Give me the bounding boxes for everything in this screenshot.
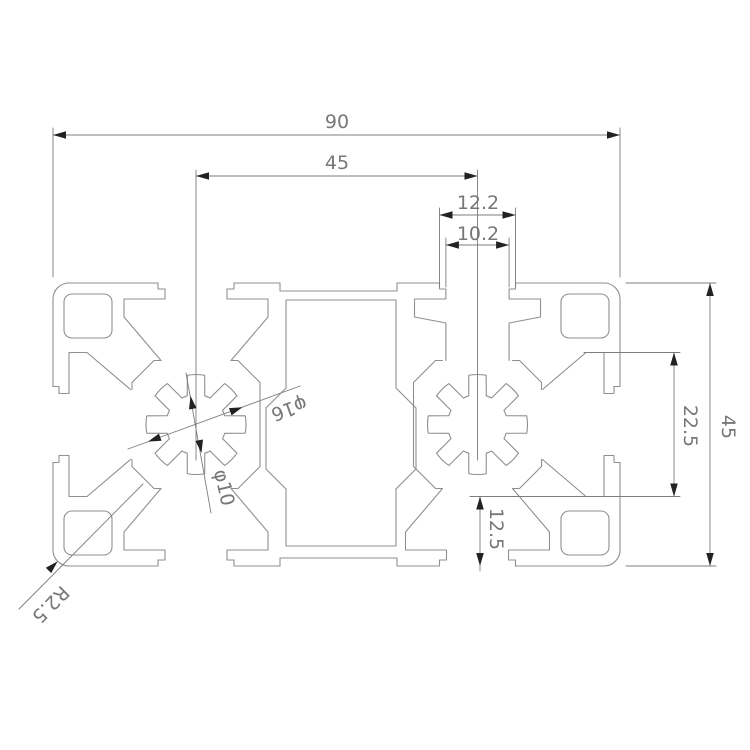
dim-channel-inner-label: 10.2 <box>457 223 499 245</box>
arrowhead <box>229 404 244 416</box>
arrowhead <box>147 434 162 446</box>
profile-outline <box>53 283 620 566</box>
dim-corner-radius-label: R2.5 <box>27 581 73 627</box>
arrowhead <box>196 172 209 180</box>
arrowhead <box>440 211 453 219</box>
dim-bore-inner-label: φ10 <box>209 467 239 508</box>
arrowhead <box>476 497 484 510</box>
dim-bottom-offset: 12.5 <box>476 497 507 572</box>
dim-bore-inner: φ10 <box>186 373 239 513</box>
dim-side-slot-span-label: 22.5 <box>679 405 701 447</box>
profile-section <box>53 283 620 566</box>
t-slot-bottom-left <box>124 489 268 567</box>
arrowhead <box>706 283 714 296</box>
arrowhead <box>706 553 714 566</box>
central-hollow <box>266 300 416 546</box>
arrowhead <box>670 353 678 366</box>
arrowhead <box>465 172 478 180</box>
cad-canvas: 90 45 12.2 10.2 45 <box>0 0 750 750</box>
t-slot-right-face <box>543 353 621 497</box>
corner-chamber-bottom-left <box>64 511 112 555</box>
arrowhead <box>46 559 61 574</box>
cad-drawing: 90 45 12.2 10.2 45 <box>0 0 750 750</box>
dim-overall-width-label: 90 <box>325 111 349 133</box>
arrowhead <box>607 131 620 139</box>
t-slot-left-face <box>53 353 131 497</box>
arrowhead <box>187 395 197 409</box>
corner-chamber-top-right <box>561 294 609 338</box>
corner-chamber-bottom-right <box>561 511 609 555</box>
corner-chamber-top-left <box>64 294 112 338</box>
arrowhead <box>503 211 516 219</box>
dim-bottom-offset-label: 12.5 <box>485 508 507 550</box>
dim-overall-height-label: 45 <box>717 415 739 439</box>
dim-side-slot-span: 22.5 <box>470 353 701 497</box>
dim-overall-width: 90 <box>53 111 620 277</box>
dim-bore-distance: 45 <box>196 152 478 460</box>
dim-corner-radius: R2.5 <box>19 484 143 627</box>
arrowhead <box>670 484 678 497</box>
arrowhead <box>53 131 66 139</box>
arrowhead <box>476 553 484 566</box>
dim-bore-distance-label: 45 <box>325 152 349 174</box>
dim-bore-outer-label: φ16 <box>268 392 310 425</box>
dim-channel-outer-label: 12.2 <box>457 192 499 214</box>
